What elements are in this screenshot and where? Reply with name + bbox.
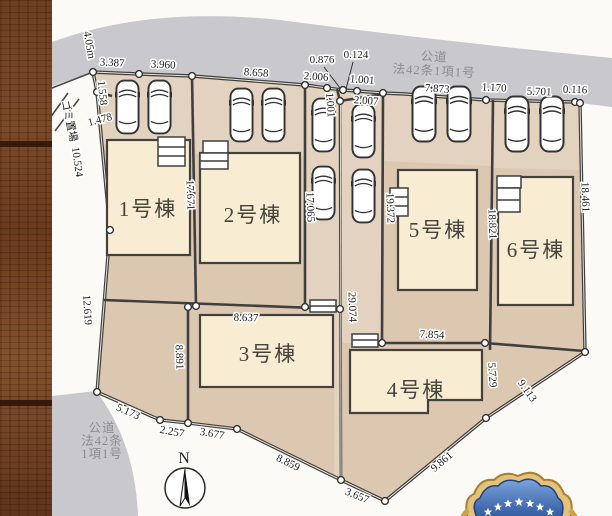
dim-5701: 5.701 bbox=[526, 86, 551, 99]
dim-2257: 2.257 bbox=[159, 424, 186, 440]
dim-3387: 3.387 bbox=[99, 56, 125, 69]
building-label-4: 4号棟 bbox=[387, 378, 446, 402]
car-icon bbox=[115, 81, 140, 134]
dim-29074: 29.074 bbox=[345, 292, 358, 323]
car-icon bbox=[261, 89, 286, 142]
car-icon bbox=[147, 81, 172, 134]
dim-2006: 2.006 bbox=[303, 70, 329, 84]
building-label-2: 2号棟 bbox=[224, 203, 283, 227]
car-icon bbox=[351, 170, 376, 223]
car-icon bbox=[446, 87, 472, 142]
dim-7854: 7.854 bbox=[419, 328, 445, 341]
divider-core bbox=[341, 101, 342, 480]
building-label-5: 5号棟 bbox=[409, 218, 468, 242]
compass-north-label: N bbox=[178, 450, 190, 467]
car-icon bbox=[504, 97, 530, 152]
dim-0116: 0.116 bbox=[563, 84, 588, 97]
dim-1170: 1.170 bbox=[481, 81, 507, 94]
road-bottom-label-2: 法42条 bbox=[81, 434, 123, 448]
car-icon bbox=[411, 87, 437, 142]
badge-gold-curl-left bbox=[461, 510, 468, 516]
compass: N bbox=[165, 450, 205, 508]
car-icon bbox=[351, 105, 376, 158]
dim-18461: 18.461 bbox=[578, 182, 591, 213]
dim-17065: 17.065 bbox=[303, 192, 316, 223]
dim-8658: 8.658 bbox=[243, 66, 269, 80]
building-label-6: 6号棟 bbox=[507, 238, 566, 262]
car-icon bbox=[539, 97, 565, 152]
dim-17671: 17.671 bbox=[183, 180, 196, 211]
dim-10524: 10.524 bbox=[69, 146, 85, 178]
building-label-3: 3号棟 bbox=[239, 342, 298, 366]
road-top-label-1: 公道 bbox=[420, 49, 448, 64]
road-bottom-label-1: 公道 bbox=[88, 421, 115, 435]
dim-1001-a: 1.001 bbox=[349, 73, 375, 87]
dim-0124: 0.124 bbox=[344, 49, 369, 61]
dim-18821: 18.821 bbox=[485, 209, 498, 240]
award-badge bbox=[461, 473, 577, 516]
building-label-1: 1号棟 bbox=[119, 197, 178, 221]
badge-gold-curl-right bbox=[570, 510, 577, 516]
dim-8891: 8.891 bbox=[173, 344, 186, 369]
dim-12619: 12.619 bbox=[80, 294, 94, 326]
dim-5729: 5.729 bbox=[485, 362, 499, 388]
dim-8637: 8.637 bbox=[233, 312, 259, 325]
dim-1001-b: 1.001 bbox=[323, 92, 337, 118]
road-bottom-label-3: 1項1号 bbox=[81, 447, 123, 461]
dim-0876: 0.876 bbox=[310, 54, 335, 66]
dim-19372: 19.372 bbox=[383, 193, 396, 224]
dim-3960: 3.960 bbox=[150, 58, 176, 71]
dim-7873: 7.873 bbox=[424, 82, 450, 96]
dim-2007: 2.007 bbox=[353, 94, 379, 108]
site-plan-page: 4.05m 3.387 3.960 1.558 1.478 8.658 2.00… bbox=[0, 0, 612, 516]
site-plan-drawing: 4.05m 3.387 3.960 1.558 1.478 8.658 2.00… bbox=[0, 0, 612, 516]
car-icon bbox=[229, 89, 254, 142]
